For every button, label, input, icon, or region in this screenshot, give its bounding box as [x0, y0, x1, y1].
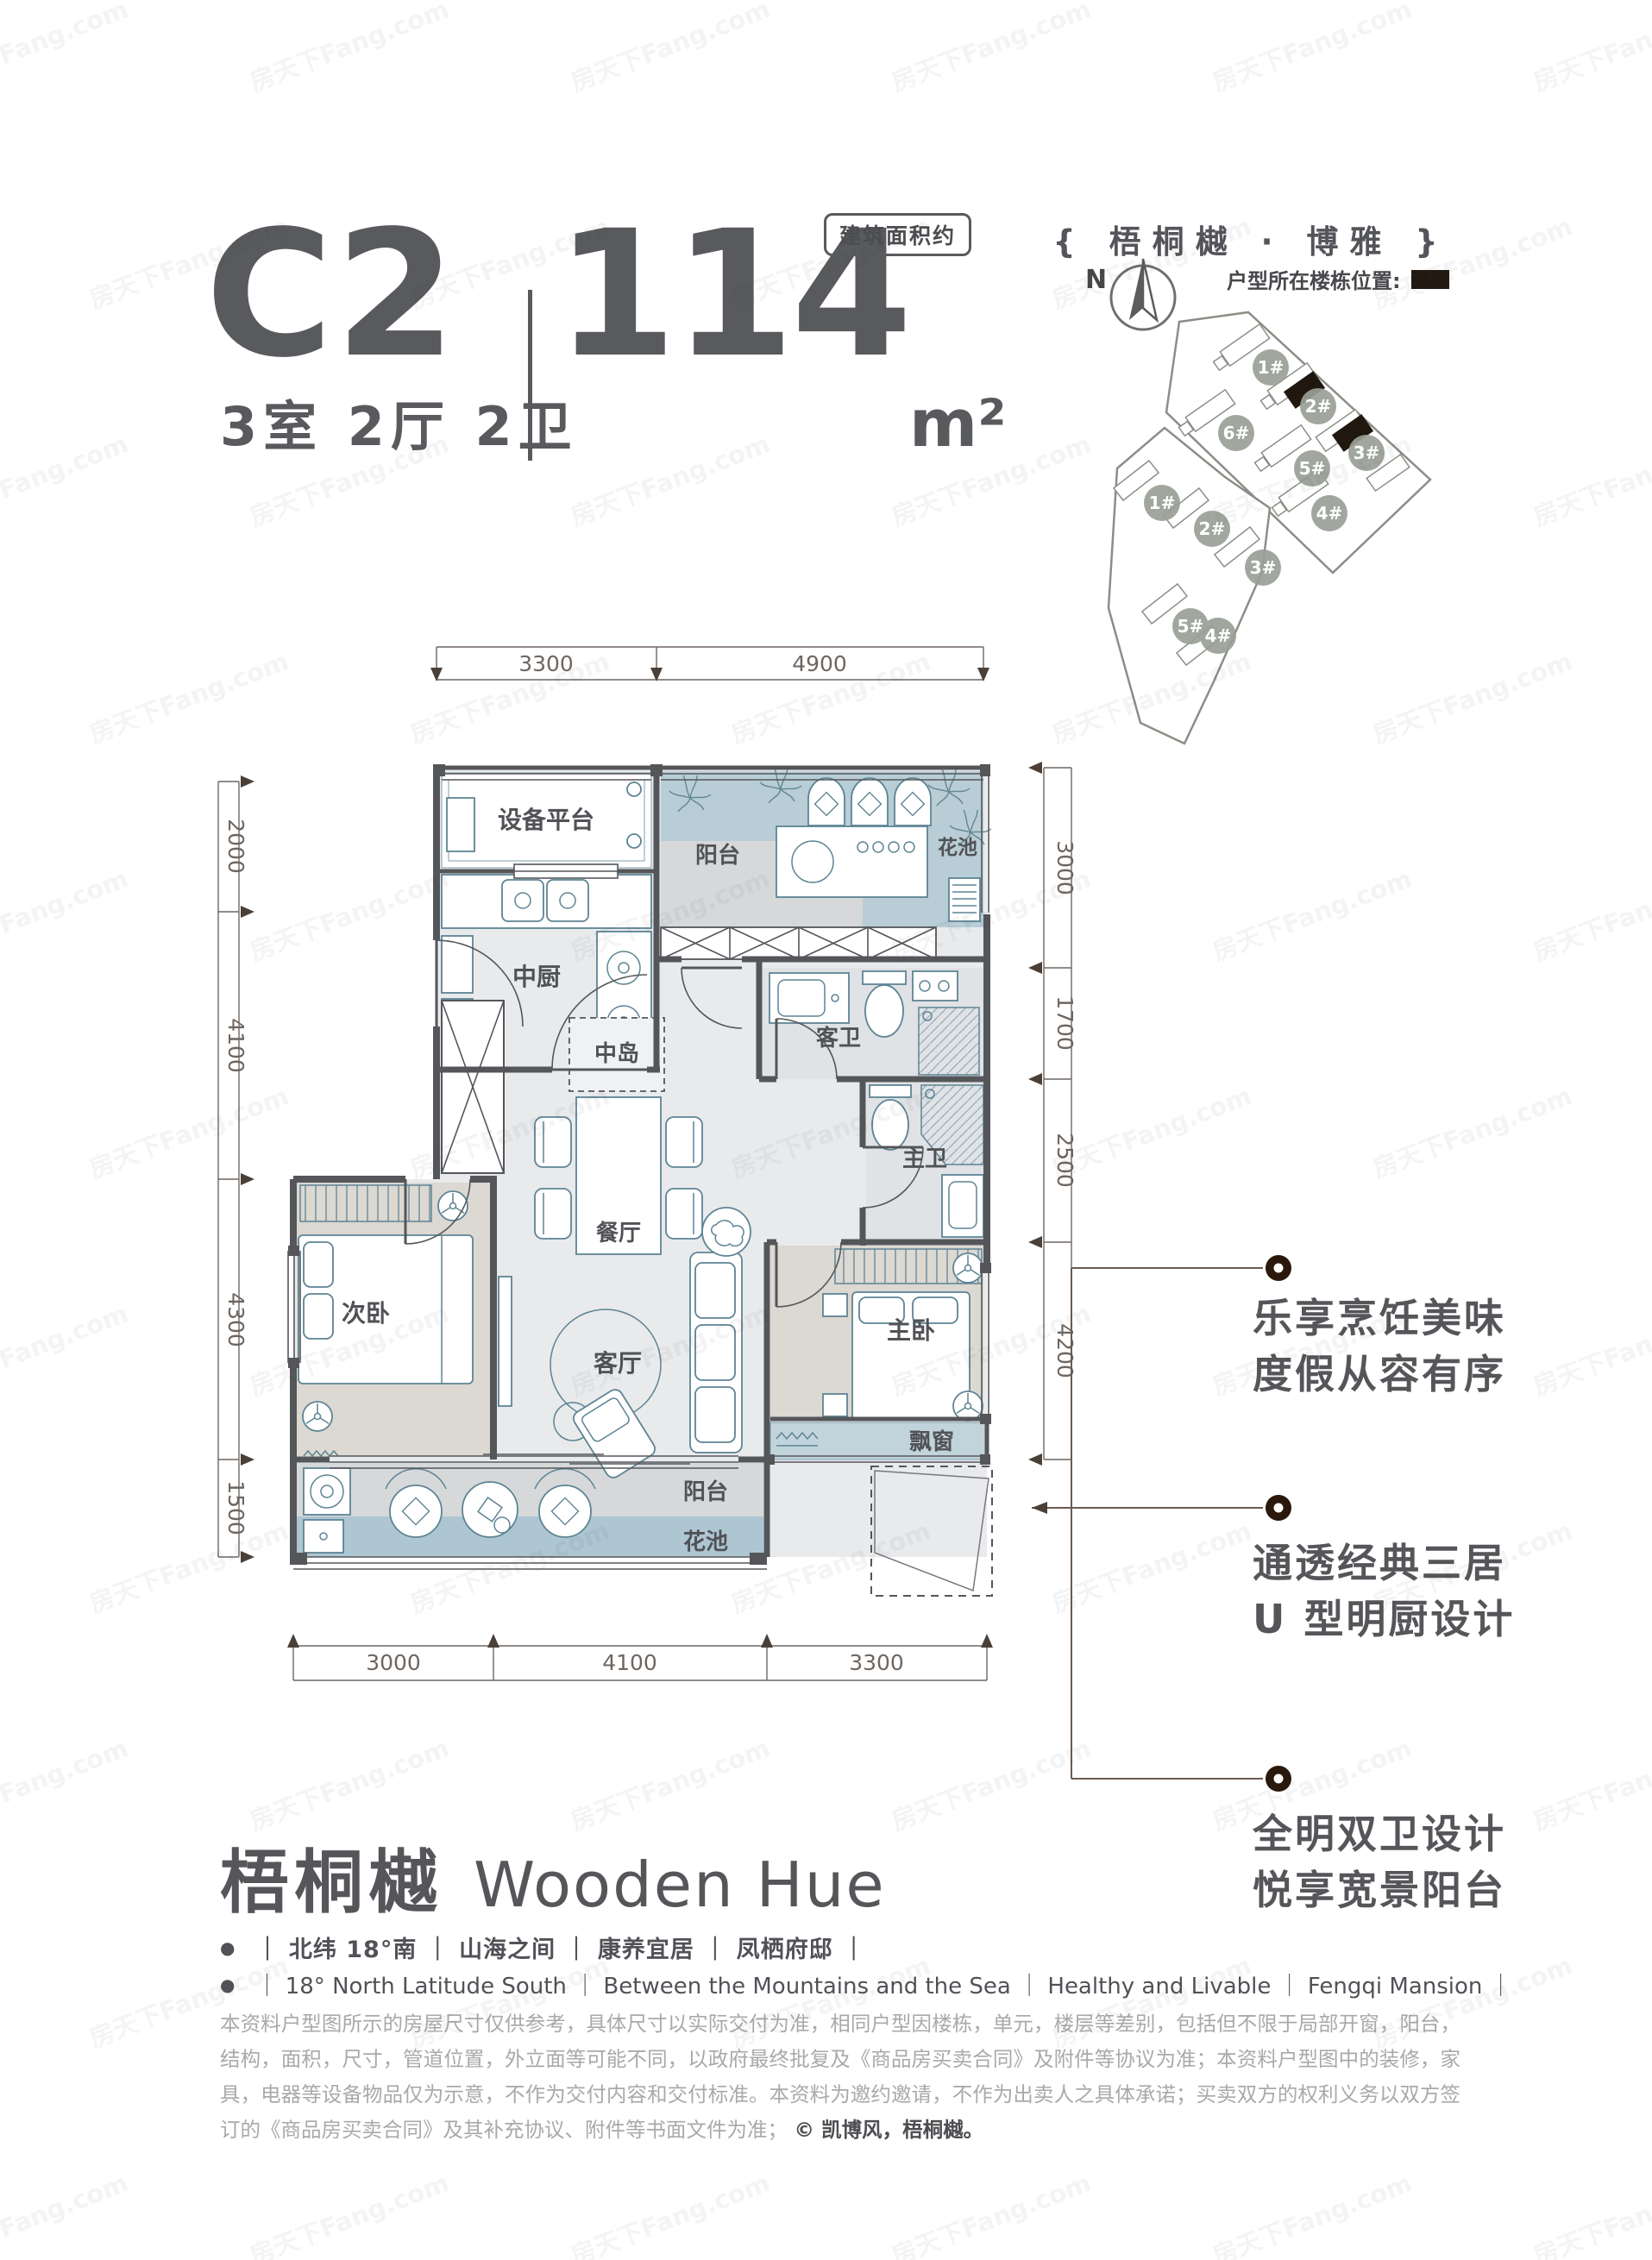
annotation-3-line-2: 悦享宽景阳台 — [1253, 1862, 1506, 1918]
room-label-guest-bath: 客卫 — [816, 1025, 861, 1052]
room-label-equipment: 设备平台 — [498, 806, 594, 834]
annotation-3-line-1: 全明双卫设计 — [1253, 1806, 1506, 1862]
room-label-flower-top: 花池 — [938, 837, 977, 859]
site-label: 3# — [1354, 443, 1380, 463]
site-label: 4# — [1316, 503, 1343, 524]
copyright: © 凯博风，梧桐樾。 — [794, 2118, 983, 2142]
compass-icon: N — [1085, 259, 1175, 330]
room-label-second-bedroom: 次卧 — [342, 1299, 390, 1328]
floor-plan: 设备平台 中厨 阳台 花池 中岛 餐厅 客卫 主卫 次卧 客厅 主卧 飘窗 阳台… — [288, 764, 992, 1596]
tagline-en: ｜ 18° North Latitude South ｜ Between the… — [255, 1968, 1511, 2000]
brand-logo-cn: 梧桐樾 — [220, 1827, 443, 1927]
dim-right-2: 1700 — [1052, 995, 1077, 1051]
site-plan: 1# 2# 6# 5# 3# 4# 1# 2# 3# 5# 4# N — [1085, 259, 1430, 744]
room-label-flower-bottom: 花池 — [683, 1529, 728, 1555]
room-label-balcony-bottom: 阳台 — [683, 1478, 728, 1505]
tagline-bullet-icon: ● — [220, 1976, 235, 1993]
dim-left-1: 2000 — [223, 819, 248, 874]
site-label: 5# — [1178, 616, 1204, 637]
dim-bottom-2: 4100 — [602, 1650, 657, 1675]
site-label: 1# — [1149, 493, 1176, 513]
annotation-2: 通透经典三居 U 型明厨设计 — [1253, 1535, 1515, 1648]
tagline-cn-row: ● ｜ 北纬 18°南 ｜ 山海之间 ｜ 康养宜居 ｜ 凤栖府邸 ｜ — [220, 1930, 866, 1964]
annotation-3: 全明双卫设计 悦享宽景阳台 — [1253, 1806, 1506, 1919]
brand-logo-en: Wooden Hue — [474, 1849, 886, 1921]
room-label-living: 客厅 — [594, 1349, 642, 1378]
room-label-dining: 餐厅 — [596, 1221, 641, 1246]
annotation-2-line-2: U 型明厨设计 — [1253, 1591, 1515, 1648]
dim-right-4: 4200 — [1052, 1323, 1077, 1378]
dim-top-1: 3300 — [518, 651, 574, 676]
tagline-cn: ｜ 北纬 18°南 ｜ 山海之间 ｜ 康养宜居 ｜ 凤栖府邸 ｜ — [255, 1930, 866, 1964]
site-label: 4# — [1205, 625, 1232, 646]
disclaimer: 本资料户型图所示的房屋尺寸仅供参考，具体尺寸以实际交付为准，相同户型因楼栋，单元… — [220, 2006, 1460, 2148]
site-label: 3# — [1250, 557, 1277, 578]
dim-left-4: 1500 — [223, 1480, 248, 1535]
site-label: 2# — [1199, 518, 1226, 539]
brand-logo: 梧桐樾 Wooden Hue — [220, 1827, 886, 1927]
room-label-master-bath: 主卫 — [902, 1146, 947, 1172]
annotation-1-line-1: 乐享烹饪美味 — [1253, 1290, 1506, 1347]
dim-right-1: 3000 — [1052, 840, 1077, 895]
dim-right-3: 2500 — [1052, 1133, 1077, 1188]
compass-n-label: N — [1085, 265, 1107, 295]
dim-bottom-3: 3300 — [849, 1650, 904, 1675]
room-label-kitchen: 中厨 — [512, 963, 561, 991]
annotation-1-line-2: 度假从容有序 — [1253, 1347, 1506, 1403]
site-label: 2# — [1305, 396, 1332, 417]
room-label-island: 中岛 — [594, 1040, 639, 1067]
room-label-bay-window: 飘窗 — [909, 1428, 954, 1455]
dim-top-2: 4900 — [792, 651, 847, 676]
tagline-bullet-icon: ● — [220, 1939, 235, 1956]
floorplan-poster: C2 114 m² 建筑面积约 3室 2厅 2卫 { 梧桐樾 · 博雅 } 户型… — [0, 0, 1652, 2260]
annotation-2-line-1: 通透经典三居 — [1253, 1535, 1515, 1591]
dim-left-3: 4300 — [223, 1292, 248, 1347]
site-label: 5# — [1299, 458, 1326, 479]
site-label: 6# — [1223, 423, 1250, 443]
dim-left-2: 4100 — [223, 1018, 248, 1073]
room-label-master-bedroom: 主卧 — [887, 1316, 935, 1345]
tagline-en-row: ● ｜ 18° North Latitude South ｜ Between t… — [220, 1968, 1512, 2000]
site-label: 1# — [1258, 357, 1285, 378]
annotation-1: 乐享烹饪美味 度假从容有序 — [1253, 1290, 1506, 1403]
dim-bottom-1: 3000 — [366, 1650, 421, 1675]
room-label-balcony-top: 阳台 — [695, 842, 740, 869]
